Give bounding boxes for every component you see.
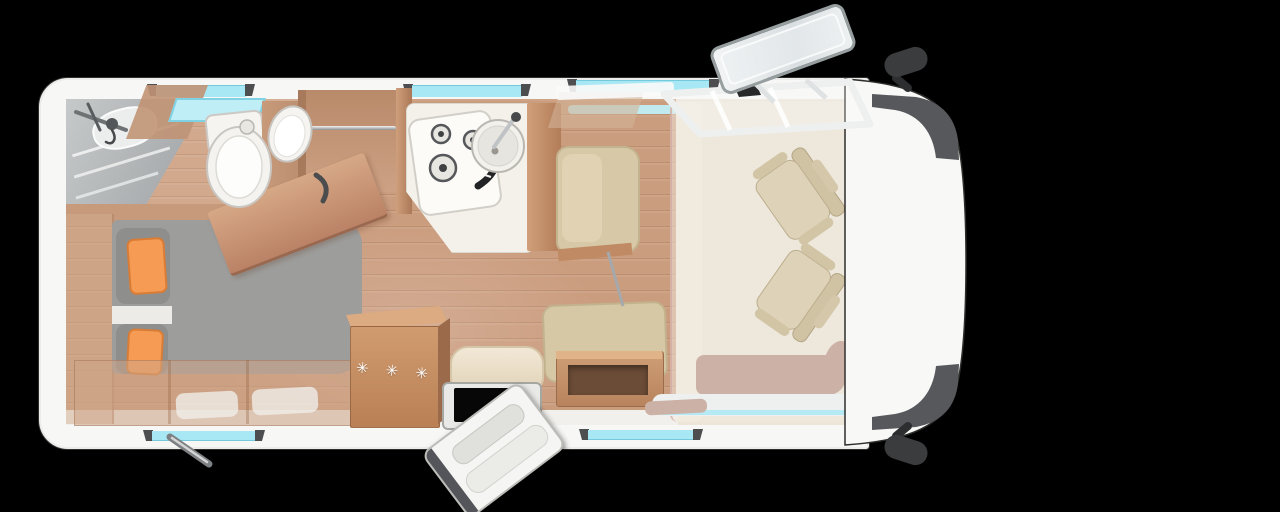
left-mirror <box>881 44 930 88</box>
bench-cushion <box>175 390 238 419</box>
forward-bench-cushion <box>562 154 602 242</box>
hatch-pane-inner-frame <box>719 12 847 86</box>
windshield <box>872 94 959 160</box>
wardrobe-hanging-rail <box>306 126 396 130</box>
bench-divider <box>168 360 171 424</box>
sideboard-open-shelf <box>568 365 648 395</box>
toilet-cistern <box>204 109 266 155</box>
bedroom-bottom-window <box>152 431 256 441</box>
bench-cushion <box>251 386 318 415</box>
floorplan-canvas: ✳ ✳ ✳ <box>0 0 1280 512</box>
bed-gap <box>112 306 172 324</box>
lounge-bottom-window <box>588 430 694 440</box>
three-burner-hob <box>407 109 504 218</box>
windshield <box>872 364 959 430</box>
orange-pillow <box>126 237 168 296</box>
sideboard-top-edge <box>556 351 662 359</box>
bench-divider <box>246 360 249 424</box>
kitchen-top-window <box>412 85 522 97</box>
right-mirror <box>881 426 930 468</box>
